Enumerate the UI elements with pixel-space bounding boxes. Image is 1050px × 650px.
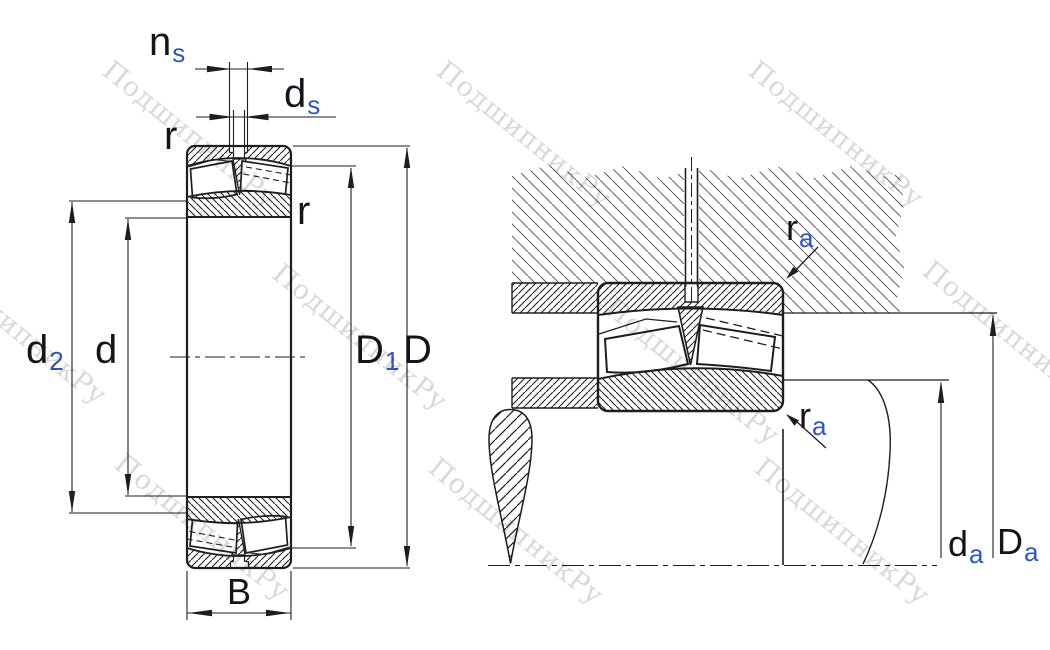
abutment-dimensions bbox=[938, 314, 996, 559]
right-view-mounting-section bbox=[488, 157, 997, 566]
label-ds: ds bbox=[284, 74, 320, 118]
left-view-bearing-section bbox=[170, 146, 308, 568]
label-da: da bbox=[948, 526, 984, 567]
roller-left bbox=[605, 326, 688, 373]
shaft-shoulder-band bbox=[512, 378, 598, 408]
label-d: d bbox=[95, 330, 117, 370]
housing-shoulder-band bbox=[512, 283, 598, 313]
label-ra-bottom: ra bbox=[799, 398, 826, 439]
label-d2: d2 bbox=[26, 330, 64, 374]
bearing-drawing-canvas bbox=[0, 0, 1050, 650]
label-D1: D1 bbox=[355, 330, 399, 374]
label-ra-top: ra bbox=[786, 210, 813, 251]
right-view-bearing bbox=[598, 283, 783, 411]
label-D: D bbox=[403, 330, 432, 370]
technical-drawing: ns ds r r d2 d D1 D B ra ra da Da Подшип… bbox=[0, 0, 1050, 650]
label-ns: ns bbox=[149, 22, 185, 66]
shaft-shoulder-curve bbox=[863, 380, 890, 564]
label-Da: Da bbox=[997, 524, 1038, 565]
shaft-shoulder-fillet bbox=[489, 410, 532, 564]
label-r-inner: r bbox=[297, 191, 310, 231]
label-r-outer: r bbox=[164, 116, 177, 156]
label-B: B bbox=[227, 574, 251, 610]
